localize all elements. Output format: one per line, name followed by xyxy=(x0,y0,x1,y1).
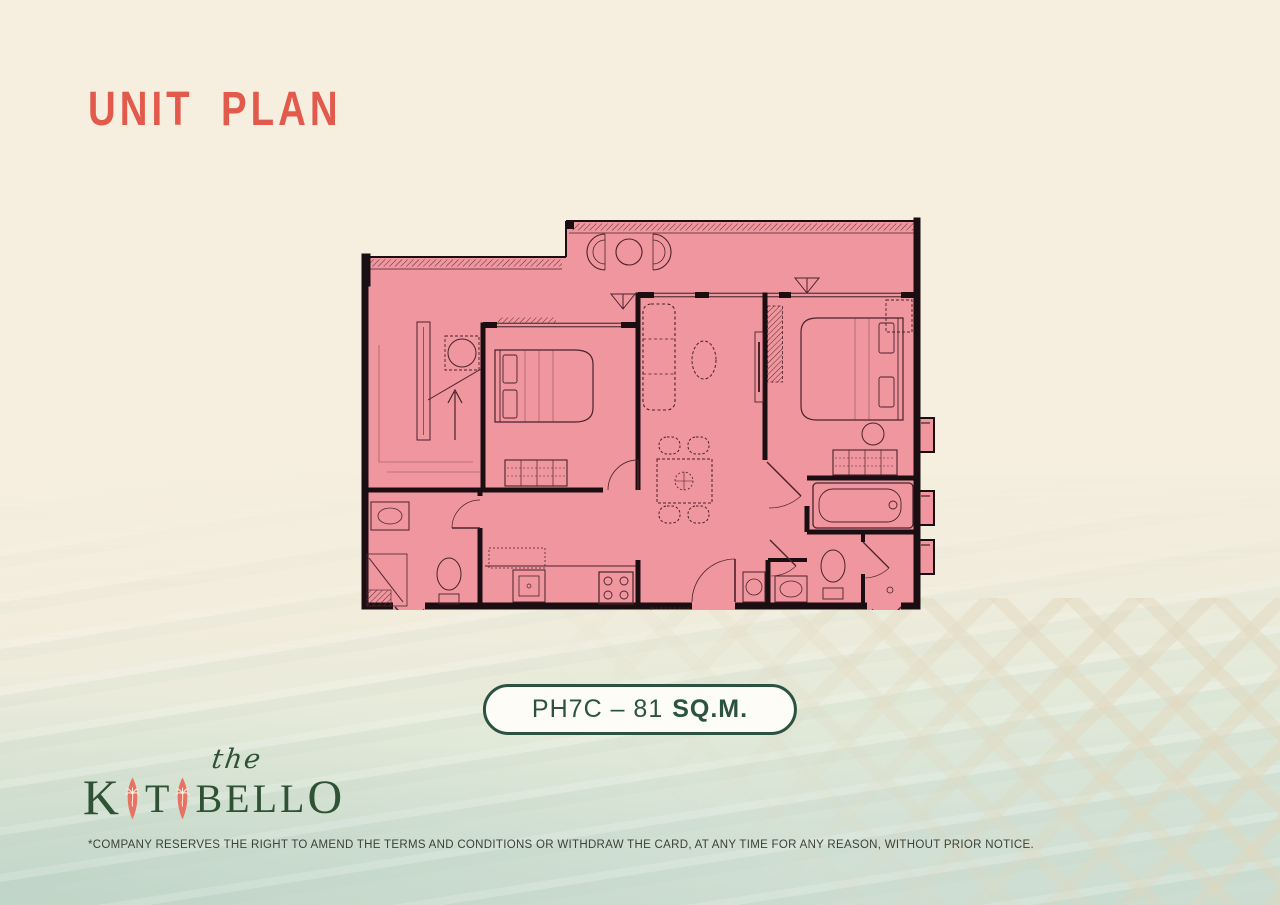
unit-plan-flyer: { "page": { "title": "UNIT PLAN" }, "col… xyxy=(0,0,1280,905)
logo-letter: T xyxy=(145,777,170,821)
diamond-pattern-background xyxy=(560,598,1280,905)
logo-letter: E xyxy=(225,777,250,821)
logo-letter: K xyxy=(83,773,120,821)
surfboard-a-icon xyxy=(122,776,143,821)
floor-plan xyxy=(355,210,935,610)
logo-the-script: the xyxy=(210,744,265,775)
disclaimer-text: *COMPANY RESERVES THE RIGHT TO AMEND THE… xyxy=(88,839,1034,851)
apartment-outline xyxy=(362,221,935,610)
logo-letter: B xyxy=(195,777,223,821)
katabello-logo: the KTBELLO xyxy=(68,744,358,821)
logo-wordmark: KTBELLO xyxy=(68,773,358,821)
terrace-hatch-strip-left xyxy=(369,260,562,267)
wardrobe-icon xyxy=(768,306,783,382)
logo-letter: L xyxy=(280,777,305,821)
page-title: UNIT PLAN xyxy=(88,82,342,137)
logo-letter: O xyxy=(307,774,343,821)
unit-badge: PH7C – 81SQ.M. xyxy=(483,684,797,735)
unit-badge-area: SQ.M. xyxy=(672,695,748,723)
logo-letter: L xyxy=(253,777,278,821)
terrace-hatch-strip xyxy=(569,224,914,231)
unit-badge-code: PH7C – 81 xyxy=(532,695,663,723)
surfboard-a-icon xyxy=(172,776,193,821)
